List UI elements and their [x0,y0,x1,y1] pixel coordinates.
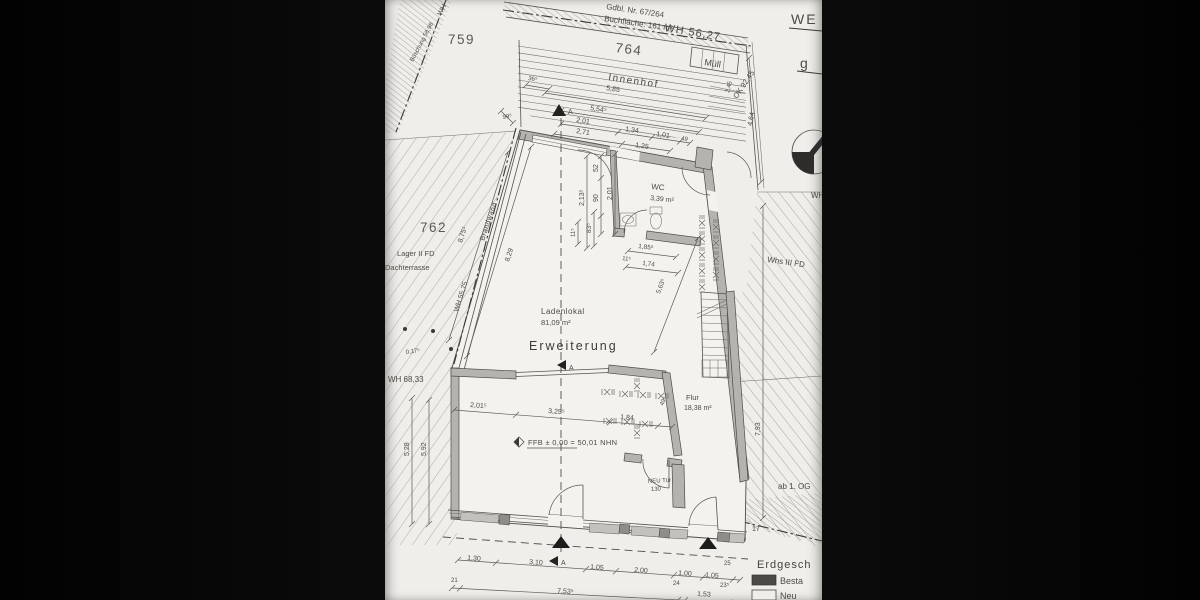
legend-neu-label: Neu [780,591,797,600]
northeast-corner-wall [695,147,713,170]
dim-1-25: 1,25 [635,142,650,151]
dim-5-85: 5,85 [606,85,621,94]
section-a-bottom-label: A [561,560,566,567]
scanned-floorplan-screenshot: Gdbl. Nr. 67/264 Buchfläche: 161 m² WH 5… [0,0,1200,600]
neu-tuer-breite-label: 130 [651,486,662,493]
ffb-label: FFB ± 0,00 = 50,01 NHN [528,438,617,447]
west-lower-wall [451,368,459,519]
neu-tuer-label: NEU Tür [648,478,672,485]
section-a-mid-label: A [569,365,574,372]
ab-1-og-label: ab 1. OG [778,482,810,491]
entrance-arrow-west [552,536,570,548]
dim-2-01-v: 2,01 [607,186,614,200]
dim-1-01: 1,01 [656,131,671,140]
dim-2-71: 2,71 [576,128,591,137]
parcel-759: 759 [448,32,475,47]
dachterrasse-label: Dachterrasse [385,263,430,272]
dim-2-01-5: 2,01⁵ [470,402,487,410]
wc-label: WC [651,182,665,192]
parcel-764: 764 [615,40,644,58]
dim-2-01: 2,01 [576,117,591,126]
erdgeschoss-heading: Erdgesch [757,559,811,571]
muell-label: Müll [704,57,722,69]
dim-49: 49 [681,136,689,143]
g-heading: g [800,55,808,71]
dim-5-28: 5,28 [404,442,411,456]
survey-dot [431,329,435,333]
southeast-strip-hatch [741,493,822,545]
floorplan-drawing: Gdbl. Nr. 67/264 Buchfläche: 161 m² WH 5… [385,0,822,600]
embankment-hatch [385,0,452,133]
courtyard-door-arc [727,152,751,178]
dim-23: 23⁵ [720,582,730,589]
legend-chip-neu [752,590,776,600]
flur-label: Flur [686,393,699,402]
dim-36: 36⁵ [528,75,539,83]
dim-7-93: 7,93 [755,422,762,436]
dim-90: 90 [593,194,600,202]
wh-68-33-label: WH 68,33 [388,375,424,384]
dim-1-84: 1,84 [620,414,634,422]
wh-fragment-right: WH [811,191,822,200]
dim-11-a: 11⁵ [570,228,577,237]
dim-4-64: 4,64 [747,112,756,127]
plan-paper: Gdbl. Nr. 67/264 Buchfläche: 161 m² WH 5… [385,0,822,600]
ladenlokal-area-label: 81,09 m² [541,318,571,327]
dim-5-92: 5,92 [421,442,428,456]
dim-83: 83⁵ [586,223,593,233]
dim-1-30: 1,30 [467,555,481,563]
dim-21: 21 [451,578,458,584]
legend-bestand-label: Besta [780,576,803,586]
dim-1-53: 1,53 [697,591,711,599]
dim-1-05-b: 1,05 [705,572,719,580]
interior-wall-south-a [624,453,642,463]
section-a-top-label: A [568,109,573,116]
interior-wall-vert [672,464,685,508]
dim-24: 24 [673,581,680,587]
ladenlokal-label: Ladenlokal [541,307,585,316]
dim-52: 52 [593,164,600,172]
dim-25: 25 [724,561,731,567]
dim-2-00: 2,00 [634,567,648,575]
dim-17: 17 [752,526,760,533]
survey-dot [449,347,453,351]
flur-area-label: 18,38 m² [684,405,712,412]
left-black-bar [0,0,385,600]
lager-label: Lager II FD [397,249,435,258]
dim-1-00: 1,00 [678,570,692,578]
dim-2-13: 2,13⁵ [579,189,586,206]
we-heading: WE [791,11,818,27]
dim-3-10: 3,10 [529,559,543,567]
dim-1-05-a: 1,05 [590,564,604,572]
legend-chip-bestand [752,575,776,585]
parcel-762: 762 [420,220,447,235]
dim-7-53: 7,53⁵ [557,588,574,596]
section-marker-bottom [549,556,558,566]
dim-5-54: 5,54⁵ [590,105,607,114]
dim-11-b: 11⁵ [622,255,632,263]
survey-dot [403,327,407,331]
dim-3-25: 3,25⁵ [548,408,565,416]
erweiterung-label: Erweiterung [529,339,618,353]
right-black-bar [822,0,1200,600]
